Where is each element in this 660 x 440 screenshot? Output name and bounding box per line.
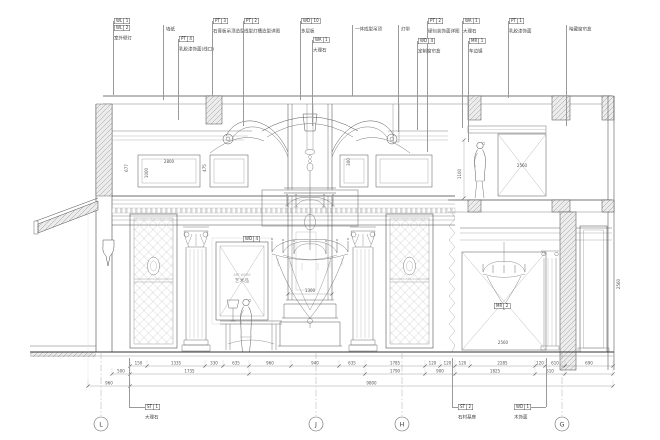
tag-cell: 1 <box>517 19 523 24</box>
tag-cell: 2 <box>252 19 258 24</box>
callout-tag: WA1 <box>463 18 480 24</box>
callout-overlay: WL1WL2室外壁灯墙纸PT4乳胶漆饰面(线口)PT3石膏板吊顶造型PT2线型灯… <box>0 0 660 440</box>
tag-cell: 1 <box>525 405 531 410</box>
callout-text: 墙纸 <box>166 23 175 33</box>
callout-text: 硬包装饰面详图 <box>428 25 460 35</box>
callout-text: 大理石 <box>313 44 327 54</box>
tag-cell: WA <box>464 19 473 24</box>
callout-label: 线型灯槽造型详图 <box>244 29 280 34</box>
callout-text: 大理石 <box>145 411 159 421</box>
callout-leader <box>352 25 353 96</box>
callout-text: 乳胶漆饰面 <box>509 25 532 35</box>
callout-label: 乳胶漆饰面 <box>509 29 532 34</box>
callout-leader <box>546 358 547 407</box>
material-tag-box: WD1 <box>514 404 531 410</box>
callout-text: 多层板 <box>301 25 315 35</box>
callout-label: 灯带 <box>401 27 410 32</box>
callout-text: 石材基座 <box>458 411 476 421</box>
callout-tag: WD1 <box>514 404 531 410</box>
tag-cell: 2 <box>436 19 442 24</box>
tag-cell: WD <box>419 39 429 44</box>
tag-cell: 3 <box>221 19 227 24</box>
tag-cell: PT <box>180 37 188 42</box>
callout-label: 石材基座 <box>458 415 476 420</box>
material-tag-box: PT1 <box>509 18 524 24</box>
callout-text: 灯带 <box>401 23 410 33</box>
callout-tag: PT2 <box>428 18 443 24</box>
tag-cell: 1 <box>153 405 159 410</box>
tag-cell: 1 <box>124 19 130 24</box>
tag-cell: 1 <box>479 39 485 44</box>
material-tag-box: PT4 <box>179 36 194 42</box>
tag-cell: MR <box>470 39 479 44</box>
callout-label: 定制窗帘盒 <box>418 49 441 54</box>
tag-cell: 2 <box>124 25 130 30</box>
material-tag-box: WD4 <box>243 236 260 242</box>
callout-leader <box>452 358 453 407</box>
tag-cell: 2 <box>466 405 472 410</box>
callout-text: 车边镜 <box>469 45 483 55</box>
callout-label: 硬包装饰面详图 <box>428 29 460 34</box>
tag-cell: MR <box>495 304 504 309</box>
material-tag-box: WD10 <box>301 18 321 24</box>
tag-cell: PT <box>510 19 518 24</box>
tag-cell: WA <box>314 38 323 43</box>
tag-cell: PT <box>214 19 222 24</box>
material-tag-box: WA1 <box>313 37 330 43</box>
tag-cell: PT <box>429 19 437 24</box>
material-tag-box: ST2 <box>458 404 473 410</box>
material-tag-box: ST1 <box>145 404 160 410</box>
tag-cell: 4 <box>187 37 193 42</box>
tag-cell: 1 <box>323 38 329 43</box>
callout-tag: WA1 <box>313 37 330 43</box>
material-tag-box: MR1 <box>469 38 485 44</box>
callout-label: 一体成型吊顶 <box>355 27 382 32</box>
callout-label: 室外壁灯 <box>114 36 132 41</box>
callout-leader <box>163 25 164 100</box>
callout-leader <box>566 25 567 126</box>
callout-tag: PT1 <box>509 18 524 24</box>
callout-tag: PT4 <box>179 36 194 42</box>
inner-callout-tag: WD4 <box>243 236 260 242</box>
callout-tag: WD10 <box>301 18 321 24</box>
tag-cell: 4 <box>254 237 260 242</box>
material-tag-box: MR2 <box>494 303 510 309</box>
callout-label: 大理石 <box>313 48 327 53</box>
tag-cell: 1 <box>473 19 479 24</box>
callout-label: 暗藏窗帘盒 <box>569 27 592 32</box>
callout-tag: WD4 <box>418 38 435 44</box>
elevation-drawing-sheet: 1501335330635960940635178512012012022851… <box>0 0 660 440</box>
callout-label: 多层板 <box>301 29 315 34</box>
callout-text: 大理石 <box>463 25 477 35</box>
material-tag-box: PT2 <box>428 18 443 24</box>
material-tag-box: WL2 <box>114 25 130 31</box>
callout-text: 暗藏窗帘盒 <box>569 23 592 33</box>
callout-tag: ST1 <box>145 404 160 410</box>
tag-cell: 2 <box>504 304 510 309</box>
callout-tag: WL1 <box>114 18 130 24</box>
callout-leader <box>468 41 469 142</box>
callout-leader <box>129 358 130 407</box>
callout-label: 大理石 <box>463 29 477 34</box>
material-tag-box: WA1 <box>463 18 480 24</box>
callout-label: 乳胶漆饰面(线口) <box>179 47 214 52</box>
callout-text: 线型灯槽造型详图 <box>244 25 280 35</box>
callout-text: 石膏板吊顶造型 <box>213 25 245 35</box>
callout-label: 木饰面 <box>514 415 528 420</box>
callout-tag: ST2 <box>458 404 473 410</box>
material-tag-box: WL1 <box>114 18 130 24</box>
tag-cell: WD <box>302 19 312 24</box>
material-tag-box: WD4 <box>418 38 435 44</box>
callout-text: 乳胶漆饰面(线口) <box>179 43 214 53</box>
tag-cell: WL <box>115 19 124 24</box>
callout-text: 一体成型吊顶 <box>355 23 382 33</box>
tag-cell: 10 <box>312 19 321 24</box>
material-tag-box: PT2 <box>244 18 259 24</box>
callout-label: 墙纸 <box>166 27 175 32</box>
callout-text: 木饰面 <box>514 411 528 421</box>
tag-cell: WL <box>115 25 124 30</box>
tag-cell: 4 <box>429 39 435 44</box>
callout-tag: WL2 <box>114 25 130 31</box>
callout-label: 车边镜 <box>469 49 483 54</box>
callout-text: 室外壁灯 <box>114 32 132 42</box>
callout-tag: MR1 <box>469 38 485 44</box>
tag-cell: WD <box>244 237 254 242</box>
tag-cell: WD <box>515 405 525 410</box>
inner-callout-tag: MR2 <box>494 303 510 309</box>
callout-leader <box>243 21 244 126</box>
callout-label: 大理石 <box>145 415 159 420</box>
callout-tag: PT3 <box>213 18 228 24</box>
callout-text: 定制窗帘盒 <box>418 45 441 55</box>
callout-leader <box>398 25 399 132</box>
callout-tag: PT2 <box>244 18 259 24</box>
tag-cell: ST <box>146 405 154 410</box>
tag-cell: ST <box>459 405 467 410</box>
tag-cell: PT <box>245 19 253 24</box>
callout-label: 石膏板吊顶造型 <box>213 29 245 34</box>
material-tag-box: PT3 <box>213 18 228 24</box>
callout-leader <box>462 21 463 128</box>
